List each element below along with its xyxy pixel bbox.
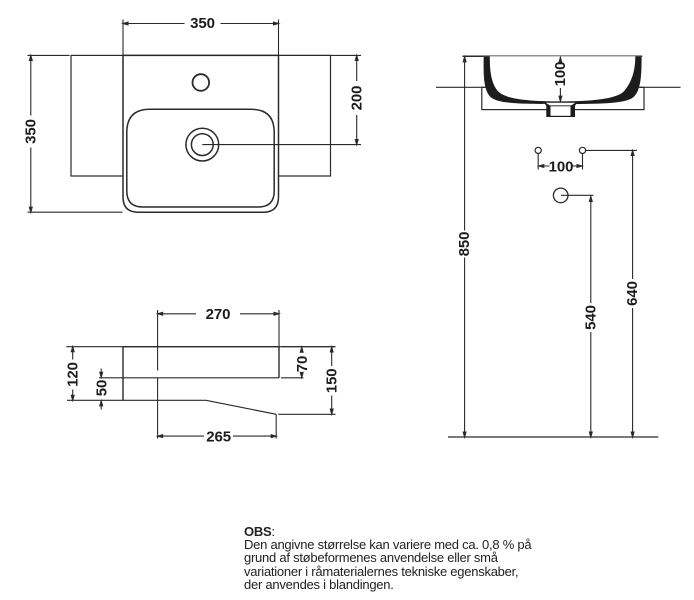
svg-text:350: 350 — [22, 119, 39, 144]
svg-text:120: 120 — [65, 362, 82, 387]
svg-text:640: 640 — [624, 281, 641, 306]
svg-text:350: 350 — [190, 15, 215, 32]
svg-text:100: 100 — [552, 62, 569, 87]
svg-text:200: 200 — [348, 86, 365, 111]
svg-text:70: 70 — [294, 356, 311, 373]
svg-text:850: 850 — [456, 232, 473, 257]
svg-text:100: 100 — [549, 158, 574, 175]
svg-text:540: 540 — [582, 305, 599, 330]
svg-text:150: 150 — [323, 368, 340, 393]
svg-text:270: 270 — [206, 306, 231, 323]
svg-text:265: 265 — [206, 428, 231, 445]
svg-text:50: 50 — [94, 380, 111, 397]
